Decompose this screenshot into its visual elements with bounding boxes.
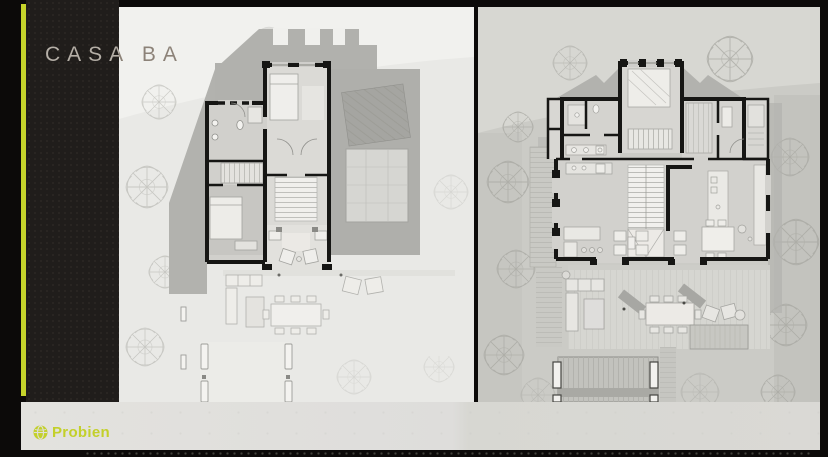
hatched-roof [342, 84, 411, 146]
courtyard [346, 149, 408, 222]
footer-bar [21, 402, 820, 450]
brand-name: Probien [52, 424, 110, 441]
terrace-rug [690, 325, 748, 349]
floor-plan-right-drawing [478, 7, 820, 402]
globe-icon [33, 425, 48, 440]
terrace [562, 265, 770, 349]
brand-logo: Probien [33, 422, 110, 442]
page-title: CASA BA [45, 43, 184, 67]
slide-canvas: CASA BA Probien [0, 0, 828, 457]
floor-plan-panel-right [478, 7, 820, 402]
bottom-dots-texture [84, 451, 810, 456]
